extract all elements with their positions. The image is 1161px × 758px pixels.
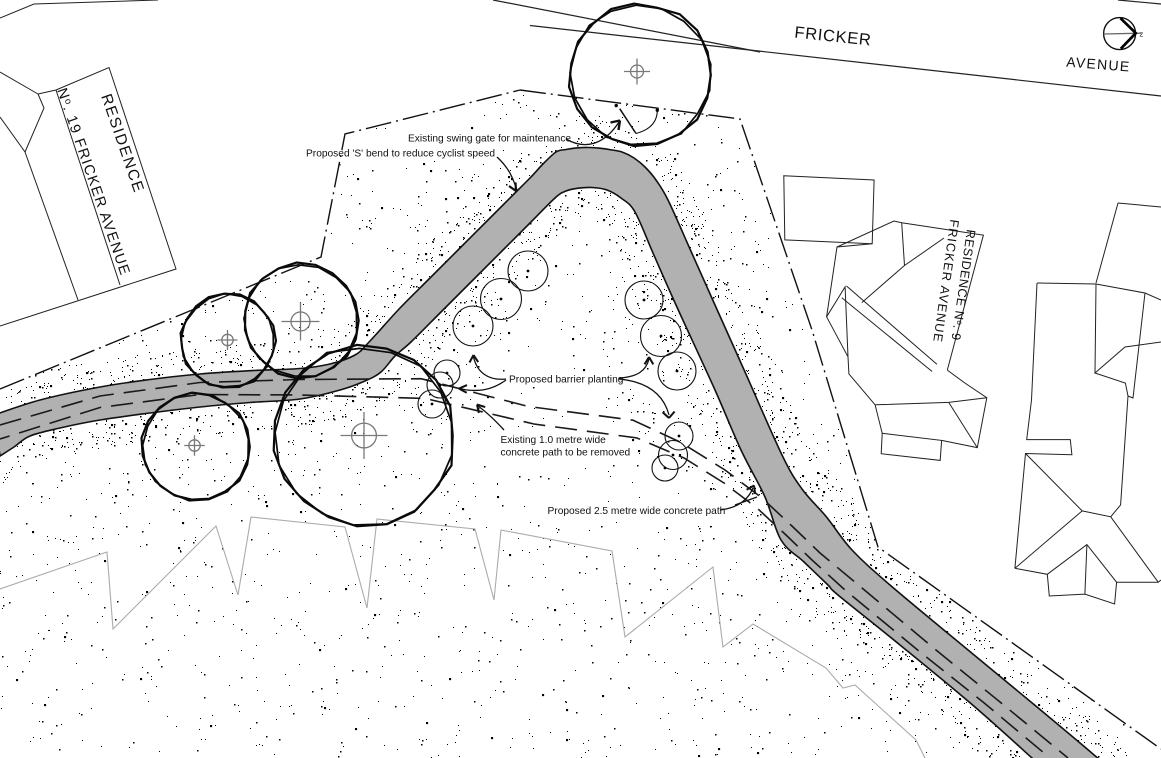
svg-text:Proposed 'S' bend to reduce cy: Proposed 'S' bend to reduce cyclist spee… [306, 149, 495, 160]
svg-text:concrete path to be removed: concrete path to be removed [501, 448, 631, 459]
svg-text:Proposed barrier planting: Proposed barrier planting [509, 375, 624, 386]
svg-text:Proposed 2.5 metre wide concre: Proposed 2.5 metre wide concrete path [548, 506, 726, 517]
svg-text:z: z [1140, 30, 1144, 39]
svg-text:Existing swing gate for mainte: Existing swing gate for maintenance [408, 134, 571, 145]
svg-text:Existing 1.0 metre wide: Existing 1.0 metre wide [501, 435, 607, 446]
